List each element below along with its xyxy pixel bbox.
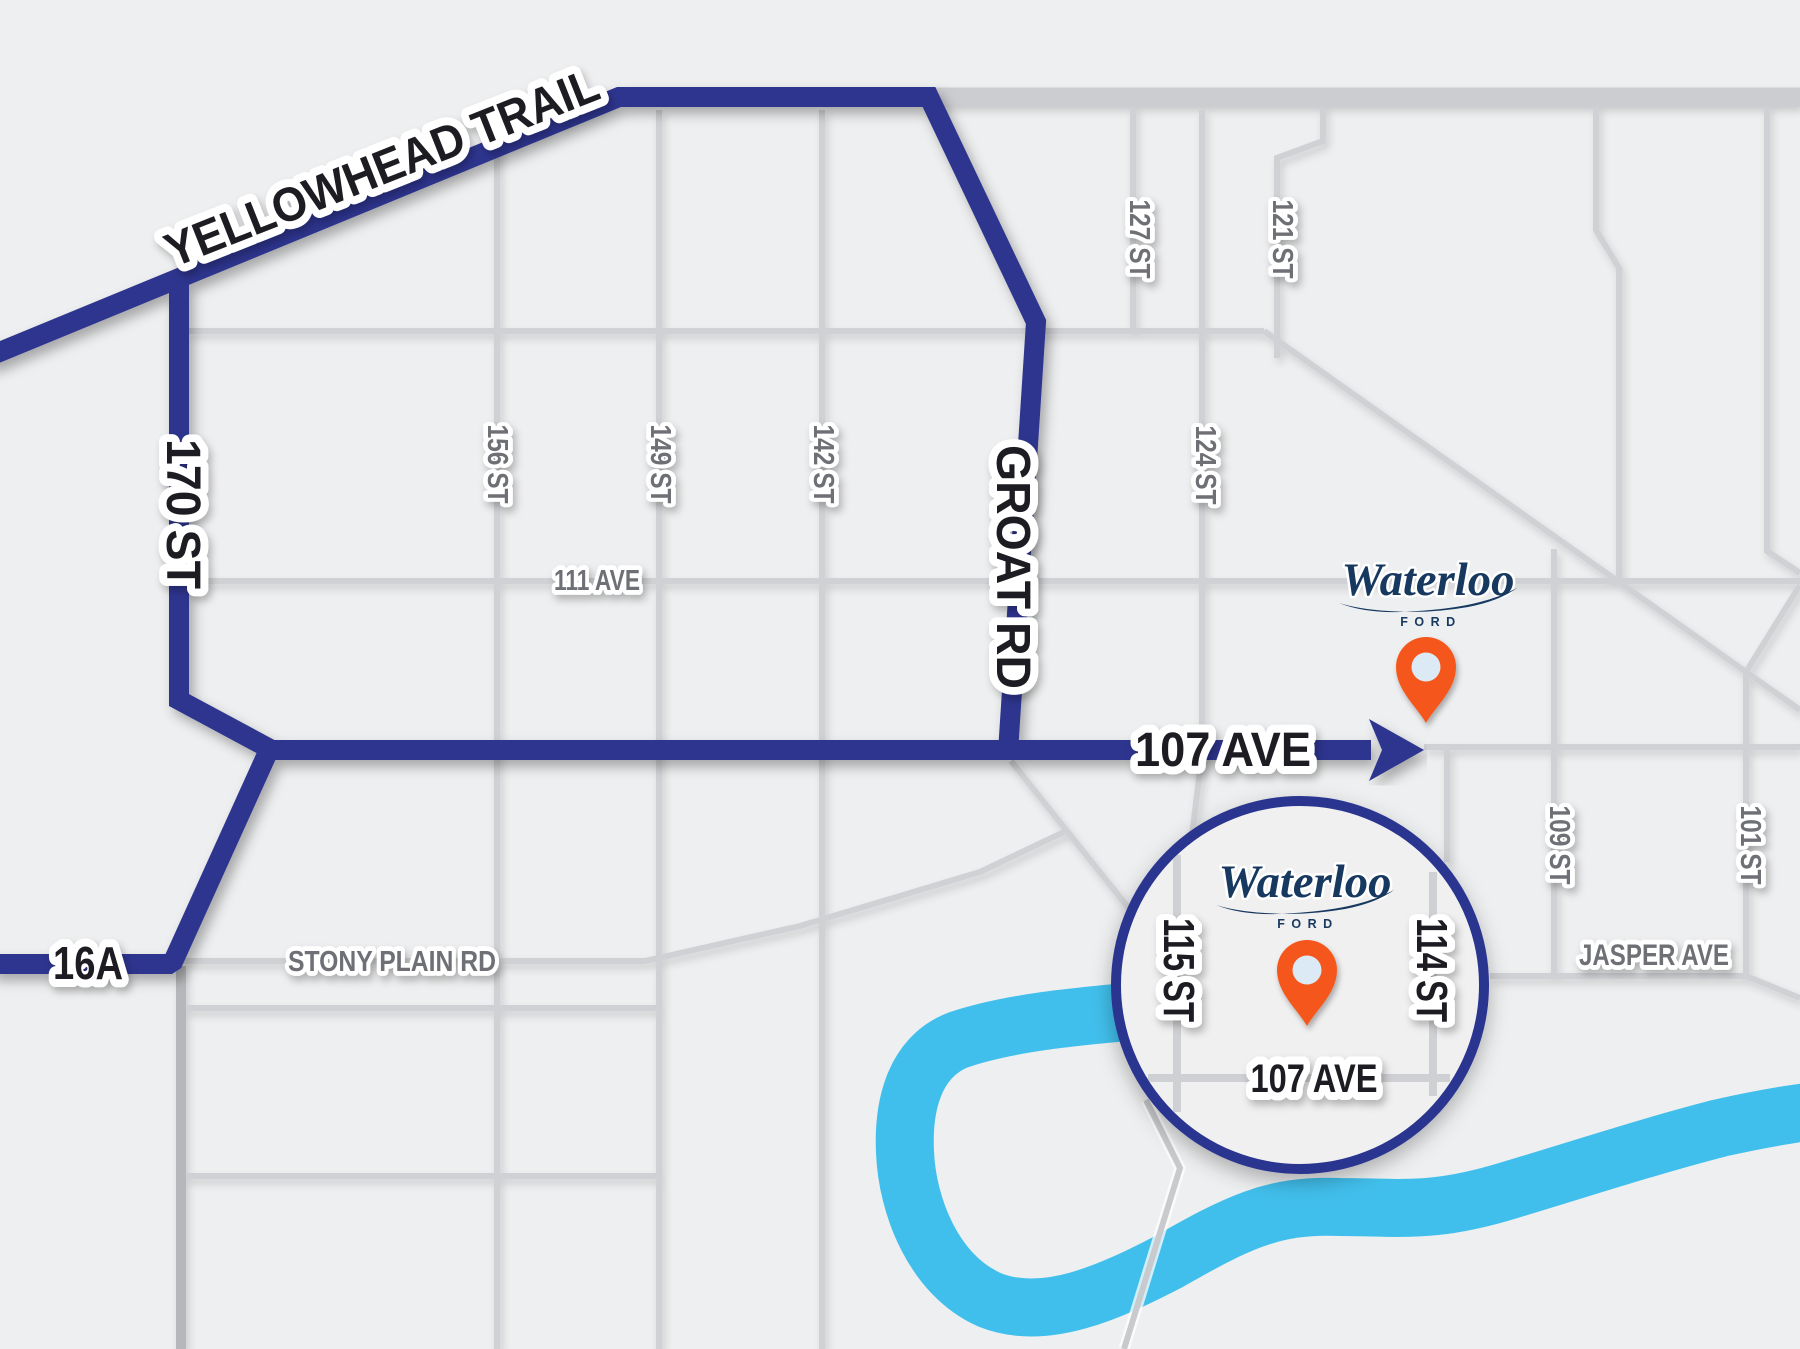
- svg-text:149 ST: 149 ST: [644, 425, 676, 504]
- svg-text:142 ST: 142 ST: [807, 425, 839, 504]
- svg-text:101 ST: 101 ST: [1734, 806, 1766, 885]
- svg-text:111 AVE: 111 AVE: [554, 565, 640, 597]
- svg-text:114 ST: 114 ST: [1407, 918, 1456, 1022]
- svg-text:127 ST: 127 ST: [1123, 200, 1155, 279]
- svg-text:GROAT RD: GROAT RD: [986, 445, 1039, 689]
- svg-text:107 AVE: 107 AVE: [1251, 1057, 1378, 1101]
- svg-text:124 ST: 124 ST: [1189, 426, 1221, 505]
- svg-text:16A: 16A: [53, 937, 123, 989]
- svg-text:107 AVE: 107 AVE: [1135, 724, 1311, 777]
- svg-text:JASPER AVE: JASPER AVE: [1579, 939, 1729, 972]
- svg-text:STONY PLAIN RD: STONY PLAIN RD: [288, 946, 496, 978]
- svg-text:156 ST: 156 ST: [481, 425, 513, 504]
- svg-text:115 ST: 115 ST: [1154, 918, 1203, 1022]
- svg-text:109 ST: 109 ST: [1543, 806, 1575, 885]
- svg-text:170 ST: 170 ST: [156, 439, 209, 589]
- svg-text:121 ST: 121 ST: [1266, 200, 1298, 279]
